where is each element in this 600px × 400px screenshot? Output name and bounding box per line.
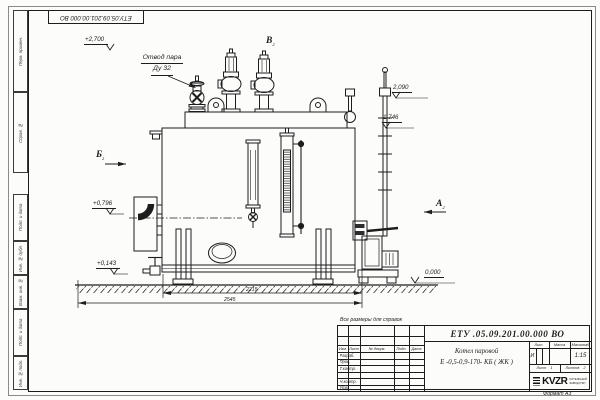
pressure-gauge-siphon bbox=[345, 89, 356, 123]
burner-unit bbox=[353, 221, 398, 283]
view-arrows bbox=[105, 162, 446, 214]
steam-outlet-label-line1: Отвод пара bbox=[141, 53, 184, 64]
steam-outlet-label-line2: Ду 32 bbox=[151, 64, 173, 75]
steam-outlet-label: Отвод пара Ду 32 bbox=[131, 53, 193, 76]
elevation-0000: 0,000 bbox=[424, 269, 444, 278]
col-data: Дата bbox=[409, 345, 424, 352]
view-label-a: А2 bbox=[436, 199, 445, 210]
sheet-value: 1 bbox=[550, 366, 552, 370]
dimension-2545: 2545 bbox=[224, 297, 236, 303]
manhole bbox=[209, 243, 236, 263]
kvzr-logo-caption: КОТЕЛЬНЫЙ ЗАВОД РЭП bbox=[569, 378, 587, 385]
left-drain-valve bbox=[143, 258, 162, 276]
kvzr-logo-icon bbox=[533, 377, 540, 386]
right-standpipe bbox=[378, 68, 392, 237]
product-name-line1: Котел паровой bbox=[440, 347, 513, 358]
format-note: Формат А3 bbox=[543, 391, 571, 397]
mass-label: Масса bbox=[549, 341, 570, 348]
lifting-lugs bbox=[208, 98, 326, 112]
sheets-value: 2 bbox=[583, 366, 585, 370]
elevation-2090: 2,090 bbox=[392, 84, 412, 93]
water-gauge-column-2 bbox=[280, 128, 304, 237]
sheets-cell: Листов 2 bbox=[560, 364, 591, 372]
sheet-cell: Лист 1 bbox=[529, 364, 560, 372]
row-utv: Утв. bbox=[340, 385, 362, 390]
reference-note: Все размеры для справок bbox=[340, 317, 402, 323]
title-block: ЕТУ .05.09.201.00.000 ВО Котел паровой Е… bbox=[337, 325, 590, 390]
kvzr-logo-text: KVZR bbox=[542, 376, 567, 387]
product-name: Котел паровой Е -0,5-0,9-170- КБ ( ЖК ) bbox=[424, 341, 529, 375]
support-legs bbox=[173, 229, 333, 284]
col-podp: Подп. bbox=[394, 345, 409, 352]
elevation-0143: +0,143 bbox=[96, 260, 120, 269]
title-designation: ЕТУ .05.09.201.00.000 ВО bbox=[424, 326, 591, 341]
elevation-2700: +2,700 bbox=[84, 36, 108, 45]
row-razrab: Разраб. bbox=[340, 353, 362, 358]
left-nozzle bbox=[150, 131, 162, 139]
elevation-1746: 1,746 bbox=[382, 114, 402, 123]
product-name-line2: Е -0,5-0,9-170- КБ ( ЖК ) bbox=[440, 358, 513, 369]
view-a-subscript: 2 bbox=[442, 205, 444, 210]
drawing-sheet: Перв. примен. Справ. № Подп. и дата Инв.… bbox=[0, 0, 600, 400]
lit-value: И bbox=[529, 348, 536, 364]
row-prov: Пров. bbox=[340, 359, 362, 364]
scale-value: 1:15 bbox=[570, 348, 591, 364]
dimension-2215: 2215 bbox=[246, 287, 258, 293]
col-list: Лист bbox=[348, 345, 360, 352]
safety-valve-1 bbox=[218, 49, 241, 112]
sheets-label: Листов bbox=[566, 366, 580, 370]
col-izm: Изм. bbox=[338, 345, 348, 352]
manufacturer-logo: KVZR КОТЕЛЬНЫЙ ЗАВОД РЭП bbox=[529, 372, 591, 391]
view-label-b: Б2 bbox=[96, 150, 104, 161]
col-dokum: № докум. bbox=[360, 345, 394, 352]
row-nkontr: Н.контр. bbox=[340, 379, 362, 384]
view-v-subscript: 2 bbox=[272, 42, 274, 47]
steam-outlet-valve bbox=[189, 76, 205, 112]
safety-valve-2 bbox=[251, 51, 274, 112]
view-b-subscript: 2 bbox=[102, 156, 104, 161]
water-gauge-column-1 bbox=[246, 140, 260, 228]
logo-caption-line2: ЗАВОД РЭП bbox=[569, 382, 587, 386]
row-tkontr: Т.контр. bbox=[340, 366, 362, 371]
lit-label: Лит. bbox=[529, 341, 549, 348]
view-label-v: В2 bbox=[266, 36, 275, 47]
scale-label: Масштаб bbox=[570, 341, 591, 348]
elevation-0796: +0,796 bbox=[92, 200, 116, 209]
sheet-label: Лист bbox=[537, 366, 547, 370]
